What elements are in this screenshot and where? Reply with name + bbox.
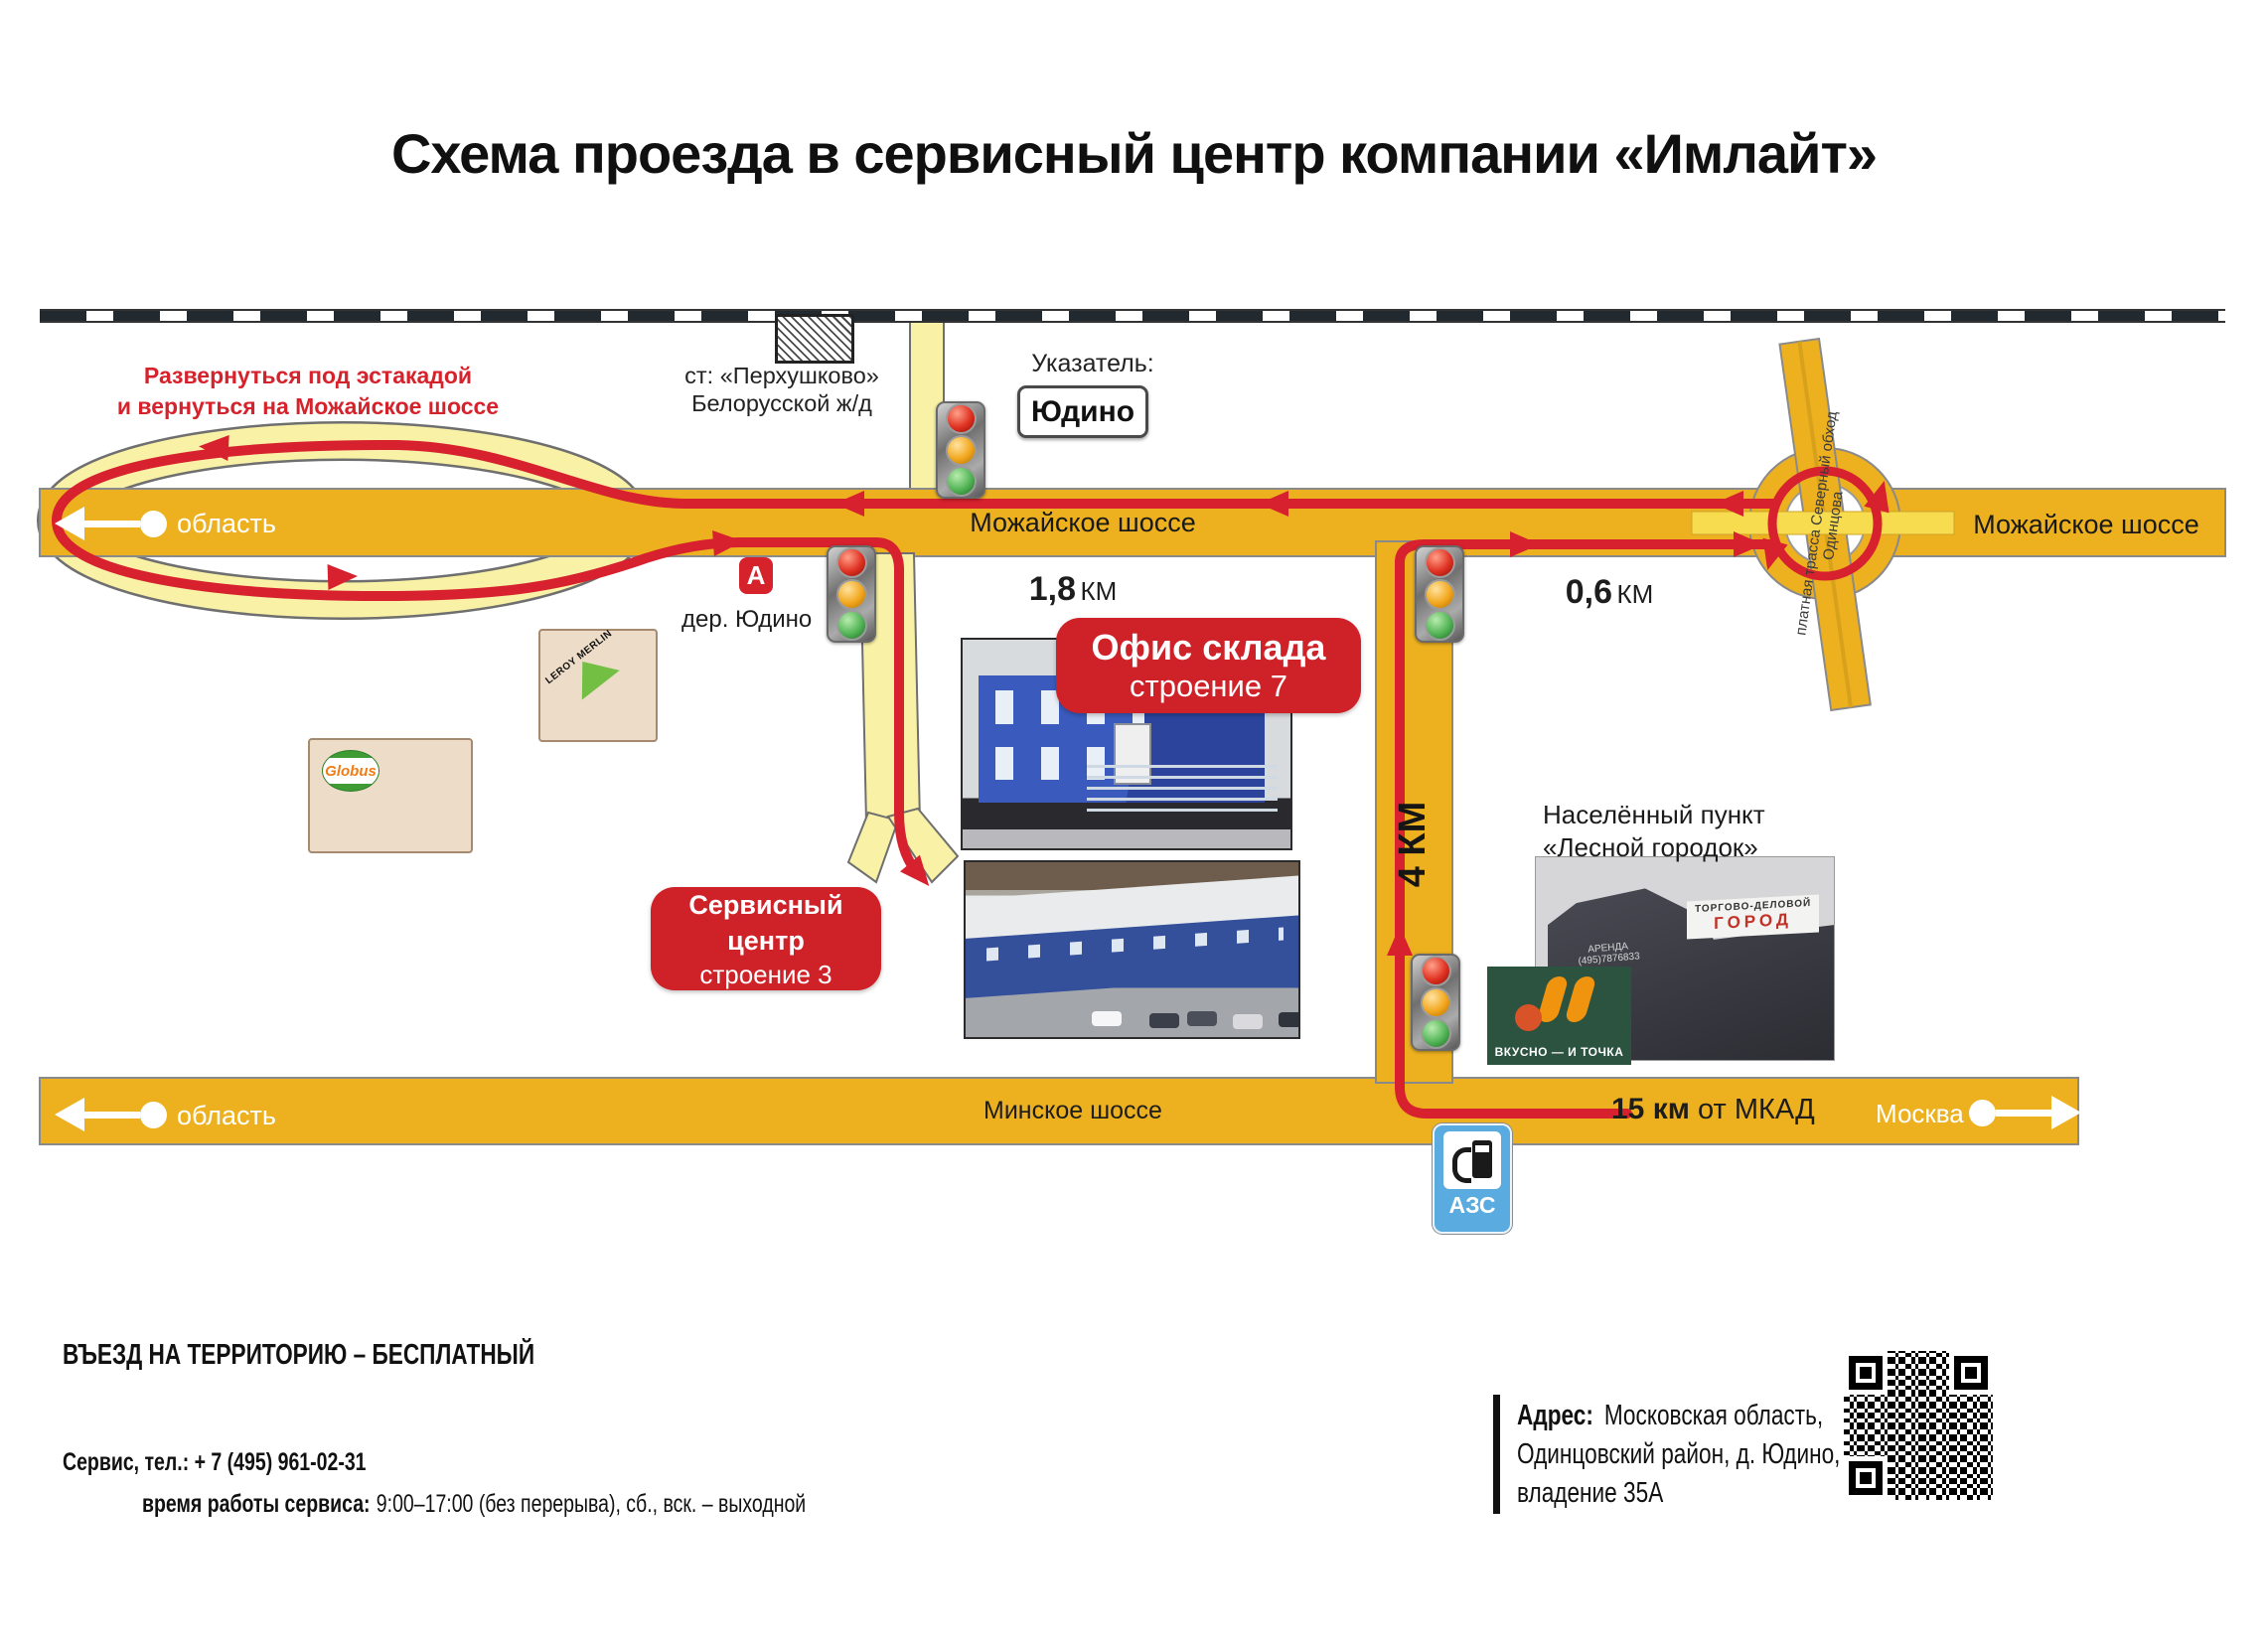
free-entry-note: ВЪЕЗД НА ТЕРРИТОРИЮ – БЕСПЛАТНЫЙ	[63, 1339, 668, 1372]
traffic-light-4km-north	[1415, 545, 1464, 643]
arrow-origin-dot	[1969, 1100, 1996, 1126]
vkusno-dot-icon	[1515, 1004, 1542, 1031]
village-label: дер. Юдино	[681, 606, 812, 634]
arrow-right-icon	[2051, 1096, 2081, 1129]
globus-wordmark: Globus	[325, 763, 377, 780]
qr-code	[1844, 1351, 1993, 1500]
station-label: ст: «Перхушково» Белорусской ж/д	[658, 362, 906, 417]
address-line3: владение 35А	[1517, 1474, 1663, 1513]
parked-cars	[1092, 1011, 1122, 1026]
green-lamp-icon	[1425, 610, 1455, 641]
service-hours-line: время работы сервиса:9:00–17:00 (без пер…	[142, 1490, 993, 1519]
service-hours-label: время работы сервиса:	[142, 1490, 371, 1518]
arrow-origin-dot	[140, 511, 167, 537]
arrow-shaft	[1996, 1110, 2051, 1117]
arrow-shaft	[84, 1112, 140, 1119]
traffic-light-4km-south	[1411, 954, 1460, 1051]
amber-lamp-icon	[836, 579, 867, 610]
fuel-hose-icon	[1452, 1147, 1471, 1183]
leroy-merlin-block: LEROY MERLIN	[538, 629, 658, 742]
settlement-line1: Населённый пункт	[1543, 799, 1765, 831]
office-badge-line1: Офис склада	[1056, 627, 1361, 669]
azs-label: АЗС	[1435, 1192, 1510, 1219]
mozhayskoe-label-right: Можайское шоссе	[1972, 510, 2200, 540]
service-center-badge: Сервисный центр строение 3	[651, 887, 881, 990]
arrow-left-icon	[55, 1098, 84, 1131]
red-lamp-icon	[946, 403, 977, 434]
green-lamp-icon	[946, 466, 977, 497]
station-platform-icon	[775, 314, 854, 364]
oblast-direction-arrow-bottom	[55, 1098, 167, 1131]
station-label-line1: ст: «Перхушково»	[658, 362, 906, 389]
service-phone-value: + 7 (495) 961-02-31	[195, 1448, 367, 1476]
leroy-merlin-logo: LEROY MERLIN	[541, 626, 647, 726]
arrow-left-icon	[55, 507, 84, 540]
address-line2: Одинцовский район, д. Юдино,	[1517, 1435, 1840, 1474]
distance-1-8km: 1,8 КМ	[993, 570, 1152, 609]
distance-rest: от МКАД	[1698, 1094, 1815, 1125]
uturn-note-line2: и вернуться на Можайское шоссе	[94, 391, 522, 422]
qr-finder-icon	[1954, 1356, 1988, 1390]
distance-4km-rotated: 4 КМ	[1392, 785, 1436, 904]
distance-unit: КМ	[1080, 576, 1117, 606]
traffic-light-yudino-south	[827, 545, 876, 643]
fuel-pump-icon	[1443, 1131, 1501, 1189]
service-badge-line2: строение 3	[651, 959, 881, 990]
office-badge-line2: строение 7	[1056, 669, 1361, 704]
gorod-sign: ТОРГОВО-ДЕЛОВОЙ ГОРОД	[1687, 894, 1819, 939]
railway-line	[40, 309, 2225, 323]
service-hours-value: 9:00–17:00 (без перерыва), сб., вск. – в…	[377, 1490, 806, 1518]
arrow-shaft	[84, 521, 140, 527]
amber-lamp-icon	[1421, 987, 1451, 1018]
address-divider	[1493, 1395, 1500, 1514]
green-lamp-icon	[836, 610, 867, 641]
bus-stop-icon: А	[739, 557, 773, 594]
oblast-direction-arrow-top	[55, 507, 167, 540]
distance-unit: КМ	[1616, 579, 1653, 609]
amber-lamp-icon	[1425, 579, 1455, 610]
pointer-caption: Указатель:	[1013, 350, 1172, 378]
oblast-label-top: область	[177, 509, 276, 539]
red-lamp-icon	[836, 547, 867, 578]
office-railing	[1087, 765, 1277, 820]
globus-logo: Globus	[322, 750, 379, 792]
arrow-origin-dot	[140, 1102, 167, 1128]
mozhayskoe-label-center: Можайское шоссе	[969, 508, 1197, 538]
service-phone-label: Сервис, тел.:	[63, 1448, 189, 1476]
red-lamp-icon	[1425, 547, 1455, 578]
minskoe-label: Минское шоссе	[983, 1097, 1152, 1125]
service-badge-line1: Сервисный центр	[651, 887, 881, 959]
qr-finder-icon	[1849, 1461, 1883, 1495]
yudino-road-sign: Юдино	[1017, 385, 1148, 438]
globus-block: Globus	[308, 738, 473, 853]
vkusno-itochka-logo: ВКУСНО — И ТОЧКА	[1487, 967, 1631, 1065]
settlement-line2: «Лесной городок»	[1543, 831, 1765, 864]
distance-value: 1,8	[1029, 570, 1076, 608]
address-label: Адрес:	[1517, 1400, 1593, 1431]
address-line1: Московская область,	[1604, 1400, 1823, 1431]
moscow-direction-arrow	[1969, 1096, 2081, 1129]
office-badge: Офис склада строение 7	[1056, 618, 1361, 713]
vkusno-m-bar-icon	[1564, 976, 1596, 1022]
vkusno-wordmark: ВКУСНО — И ТОЧКА	[1487, 1045, 1631, 1059]
moscow-label: Москва	[1876, 1099, 1964, 1129]
settlement-label: Населённый пункт «Лесной городок»	[1543, 799, 1765, 864]
distance-15km-mkad: 15 км от МКАД	[1611, 1093, 1815, 1126]
red-lamp-icon	[1421, 956, 1451, 986]
uturn-note: Развернуться под эстакадой и вернуться н…	[94, 361, 522, 422]
distance-0-6km: 0,6 КМ	[1535, 573, 1684, 612]
green-lamp-icon	[1421, 1018, 1451, 1049]
uturn-note-line1: Развернуться под эстакадой	[94, 361, 522, 391]
gas-station-sign: АЗС	[1433, 1123, 1512, 1234]
free-entry-text: ВЪЕЗД НА ТЕРРИТОРИЮ – БЕСПЛАТНЫЙ	[63, 1339, 534, 1372]
traffic-light-yudino-north	[936, 401, 985, 499]
service-phone-line: Сервис, тел.: + 7 (495) 961-02-31	[63, 1448, 452, 1477]
qr-finder-icon	[1849, 1356, 1883, 1390]
station-label-line2: Белорусской ж/д	[658, 389, 906, 417]
distance-value: 15 км	[1611, 1093, 1690, 1125]
warehouse-photo	[964, 860, 1300, 1039]
oblast-label-bottom: область	[177, 1101, 276, 1131]
distance-value: 0,6	[1566, 573, 1612, 611]
amber-lamp-icon	[946, 435, 977, 466]
page-title: Схема проезда в сервисный центр компании…	[0, 121, 2268, 186]
route-scheme-page: Схема проезда в сервисный центр компании…	[0, 0, 2268, 1643]
